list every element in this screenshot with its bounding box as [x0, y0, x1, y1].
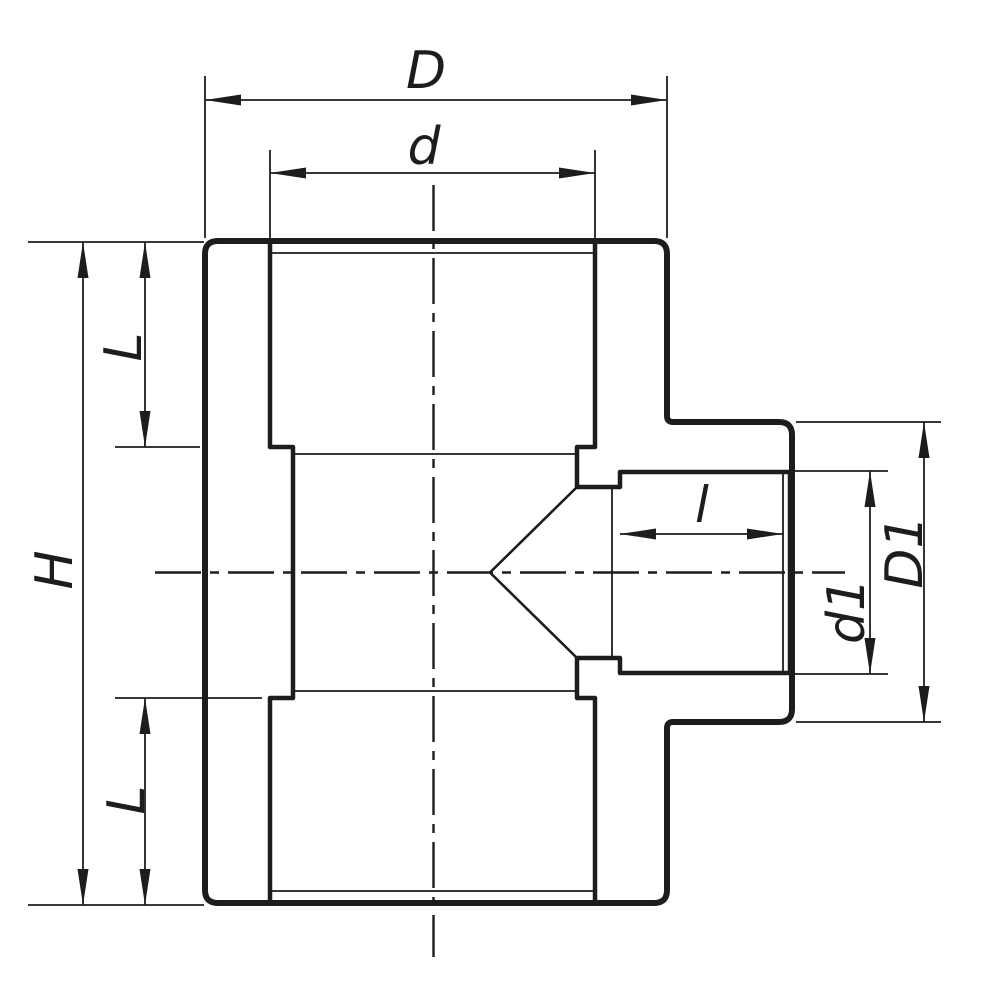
arrowhead-left: [270, 168, 306, 179]
label-l: l: [695, 476, 709, 534]
arrowhead-bottom: [78, 869, 89, 905]
arrowhead-left: [205, 95, 241, 106]
arrowhead-left: [620, 529, 656, 540]
dimension-L-bottom: L: [97, 698, 262, 905]
technical-drawing-page: D d H L: [0, 0, 1000, 1000]
arrowhead-top: [919, 422, 930, 458]
arrowhead-bottom: [140, 869, 151, 905]
label-D1: D1: [875, 515, 935, 588]
arrowhead-top: [140, 698, 151, 734]
arrowhead-right: [747, 529, 783, 540]
arrowhead-top: [78, 242, 89, 278]
label-L-top: L: [94, 333, 154, 362]
centerlines: [155, 185, 845, 957]
label-d: d: [407, 117, 441, 177]
arrowhead-bottom: [919, 686, 930, 722]
label-D: D: [406, 41, 446, 101]
arrowhead-right: [559, 168, 595, 179]
arrowhead-bottom: [140, 411, 151, 447]
label-L-bottom: L: [97, 786, 157, 815]
dimension-l: l: [620, 476, 783, 540]
label-H: H: [25, 550, 85, 589]
dimension-L-top: L: [94, 242, 200, 447]
arrowhead-top: [140, 242, 151, 278]
tee-fitting-section-drawing: D d H L: [0, 0, 1000, 1000]
label-d1: d1: [817, 578, 877, 644]
arrowhead-right: [631, 95, 667, 106]
arrowhead-top: [865, 471, 876, 507]
